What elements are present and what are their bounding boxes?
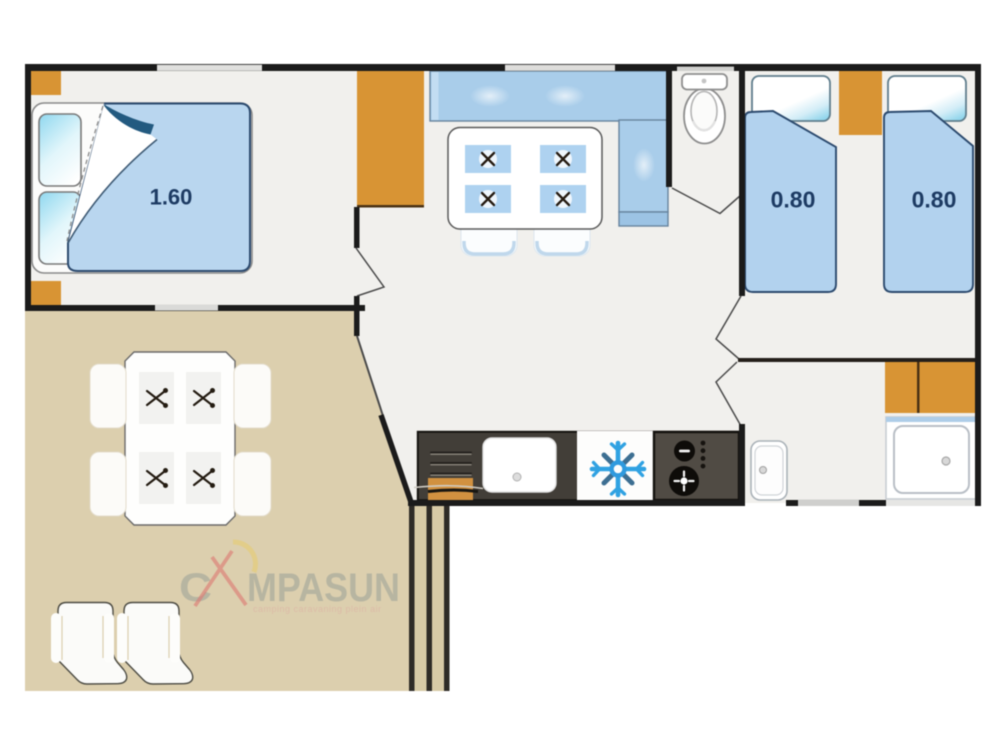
svg-text:camping caravaning plein air: camping caravaning plein air — [253, 604, 382, 614]
svg-text:0.80: 0.80 — [912, 187, 957, 213]
svg-text:0.80: 0.80 — [771, 187, 816, 213]
svg-text:1.60: 1.60 — [150, 185, 193, 210]
